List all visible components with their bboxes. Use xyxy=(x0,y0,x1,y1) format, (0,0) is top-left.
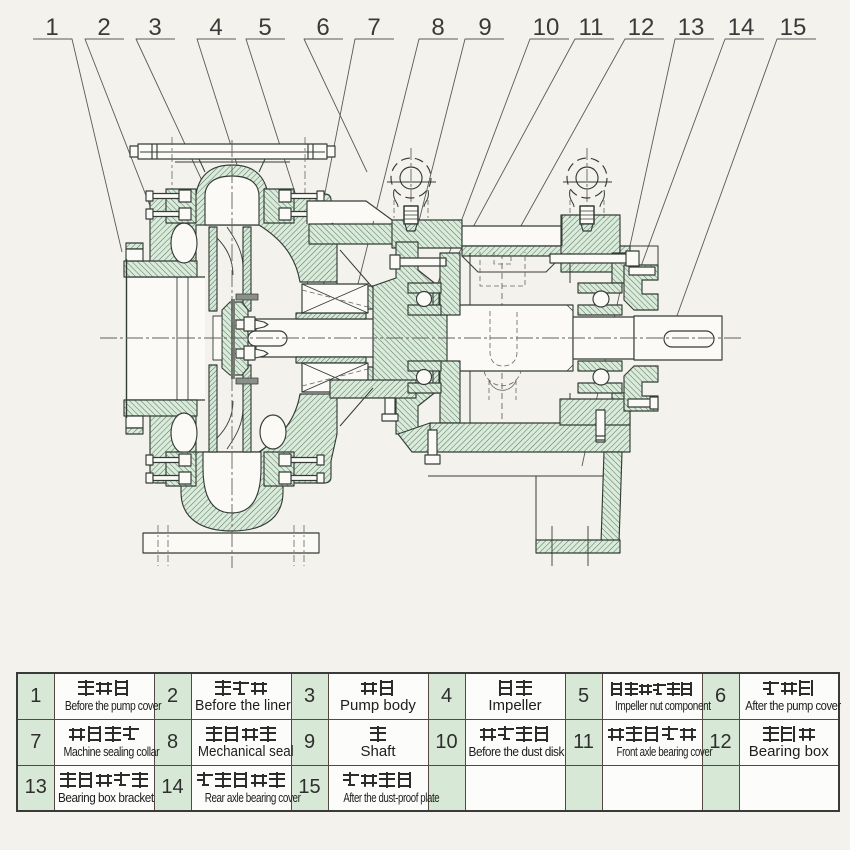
svg-text:2: 2 xyxy=(97,14,110,41)
svg-text:5: 5 xyxy=(258,14,271,41)
svg-text:15: 15 xyxy=(780,14,807,41)
svg-text:3: 3 xyxy=(148,14,161,41)
svg-text:6: 6 xyxy=(316,14,329,41)
svg-text:12: 12 xyxy=(628,14,655,41)
svg-text:4: 4 xyxy=(209,14,222,41)
svg-text:13: 13 xyxy=(678,14,705,41)
svg-text:14: 14 xyxy=(728,14,755,41)
svg-text:7: 7 xyxy=(367,14,380,41)
svg-text:9: 9 xyxy=(478,14,491,41)
svg-text:11: 11 xyxy=(579,14,604,41)
svg-text:8: 8 xyxy=(431,14,444,41)
svg-text:10: 10 xyxy=(533,14,560,41)
svg-text:1: 1 xyxy=(45,14,58,41)
